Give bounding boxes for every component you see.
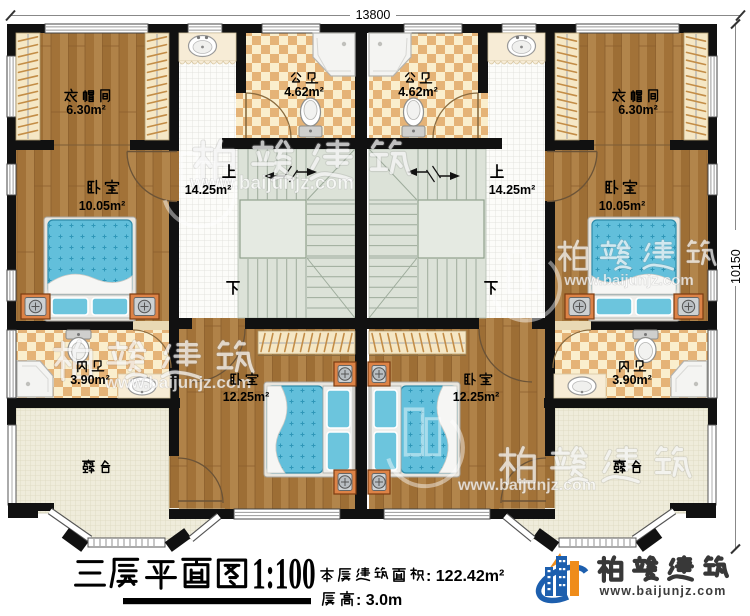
svg-text:10.05m²: 10.05m² xyxy=(599,199,646,213)
svg-text:www.baijunjz.com: www.baijunjz.com xyxy=(598,584,726,598)
svg-text:1:100: 1:100 xyxy=(252,548,316,597)
svg-text:3.90m²: 3.90m² xyxy=(70,373,110,387)
svg-text:3.90m²: 3.90m² xyxy=(612,373,652,387)
svg-text:13800: 13800 xyxy=(356,8,391,22)
svg-text:12.25m²: 12.25m² xyxy=(223,390,270,404)
svg-text:4.62m²: 4.62m² xyxy=(398,85,438,99)
svg-text:6.30m²: 6.30m² xyxy=(66,103,106,117)
svg-text:: 3.0m: : 3.0m xyxy=(356,592,402,609)
svg-text:www.baijunjz.com: www.baijunjz.com xyxy=(563,272,693,289)
svg-text:12.25m²: 12.25m² xyxy=(453,390,500,404)
svg-text:: 122.42m²: : 122.42m² xyxy=(426,568,504,585)
svg-text:14.25m²: 14.25m² xyxy=(185,183,232,197)
svg-text:www.baijunjz.com: www.baijunjz.com xyxy=(457,477,596,494)
svg-text:10.05m²: 10.05m² xyxy=(79,199,126,213)
svg-text:14.25m²: 14.25m² xyxy=(489,183,536,197)
svg-text:4.62m²: 4.62m² xyxy=(284,85,324,99)
svg-text:10150: 10150 xyxy=(729,249,743,284)
svg-text:6.30m²: 6.30m² xyxy=(618,103,658,117)
